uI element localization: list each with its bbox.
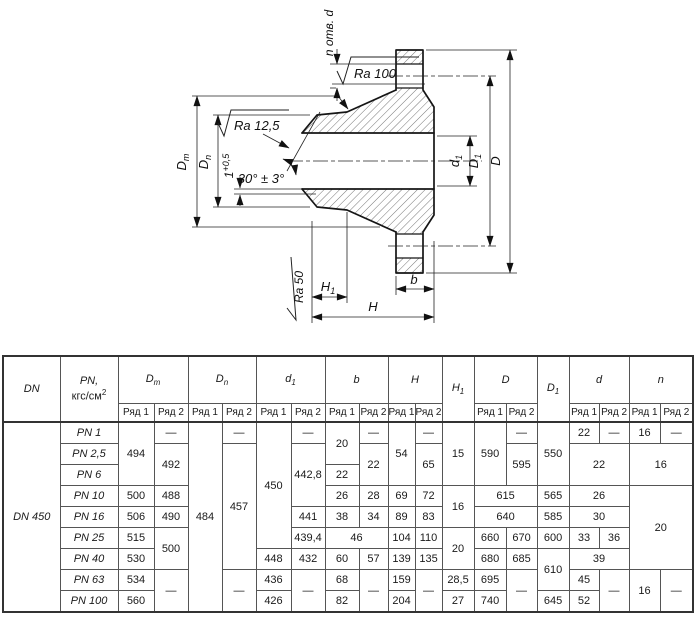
table-cell: 550 xyxy=(537,422,569,486)
table-cell: 69 xyxy=(388,486,415,507)
table-cell: 28,5 xyxy=(442,570,474,591)
table-cell: 204 xyxy=(388,591,415,613)
ra125-label: Ra 12,5 xyxy=(234,118,280,133)
col-header-h1: H1 xyxy=(442,356,474,422)
table-cell: 432 xyxy=(291,549,325,570)
table-cell: 26 xyxy=(569,486,629,507)
col-header-n: n xyxy=(629,356,693,404)
dimension-lines xyxy=(192,49,517,323)
table-cell: 89 xyxy=(388,507,415,528)
table-cell: 110 xyxy=(415,528,442,549)
subheader-row1: Ряд 1 xyxy=(474,404,506,423)
dim-dm-label: Dm xyxy=(174,153,191,170)
flange-drawing: n отв. d Ra 100 Ra 12,5 Ra 50 30° ± 3° D… xyxy=(0,0,700,353)
table-row: PN 1050048826286972166155652620 xyxy=(3,486,693,507)
table-cell: — xyxy=(154,422,188,444)
table-cell: — xyxy=(415,422,442,444)
table-cell: — xyxy=(415,570,442,613)
table-cell: 20 xyxy=(442,528,474,570)
table-cell: — xyxy=(222,570,256,613)
col-header-D: D xyxy=(474,356,537,404)
table-cell: 20 xyxy=(325,422,359,465)
subheader-row2: Ряд 2 xyxy=(154,404,188,423)
subheader-row2: Ряд 2 xyxy=(599,404,629,423)
table-cell: 590 xyxy=(474,422,506,486)
subheader-row1: Ряд 1 xyxy=(325,404,359,423)
table-cell: 492 xyxy=(154,444,188,486)
table-cell: 104 xyxy=(388,528,415,549)
table-cell: 159 xyxy=(388,570,415,591)
table-cell: — xyxy=(291,422,325,444)
ra100-label: Ra 100 xyxy=(354,66,397,81)
dim-D-label: D xyxy=(488,156,503,165)
table-cell: 680 xyxy=(474,549,506,570)
table-cell: 640 xyxy=(474,507,537,528)
table-cell: — xyxy=(359,570,388,613)
col-header-D1: D1 xyxy=(537,356,569,422)
table-row: PN 100560426822042774064552 xyxy=(3,591,693,613)
table-cell: 600 xyxy=(537,528,569,549)
flange-section-hatching xyxy=(302,50,434,273)
table-cell: — xyxy=(359,422,388,444)
table-cell: 484 xyxy=(188,422,222,612)
table-cell: 426 xyxy=(256,591,291,613)
table-cell: — xyxy=(291,570,325,613)
table-cell: 494 xyxy=(118,422,154,486)
table-row: PN 25515500439,446104110206606706003336 xyxy=(3,528,693,549)
table-cell: PN 16 xyxy=(60,507,118,528)
table-cell: 16 xyxy=(629,570,660,613)
dim-D1-label: D1 xyxy=(466,154,483,168)
table-cell: PN 6 xyxy=(60,465,118,486)
col-header-pn: PN, кгс/см2 xyxy=(60,356,118,422)
col-header-d1: d1 xyxy=(256,356,325,404)
table-cell: 34 xyxy=(359,507,388,528)
table-cell: 30 xyxy=(569,507,629,528)
table-cell: 615 xyxy=(474,486,537,507)
table-cell: 490 xyxy=(154,507,188,528)
table-cell: 695 xyxy=(474,570,506,591)
table-cell: — xyxy=(599,422,629,444)
dim-d1-label: d1 xyxy=(447,155,464,167)
table-cell: 22 xyxy=(359,444,388,486)
table-cell: 442,8 xyxy=(291,444,325,507)
table-cell: 60 xyxy=(325,549,359,570)
table-cell: PN 25 xyxy=(60,528,118,549)
subheader-row1: Ряд 1 xyxy=(629,404,660,423)
dim-h-label: H xyxy=(368,299,378,314)
subheader-row2: Ряд 2 xyxy=(222,404,256,423)
flange-outline xyxy=(302,50,434,273)
col-header-dn: DN xyxy=(3,356,60,422)
table-cell: 660 xyxy=(474,528,506,549)
dim-root-label: 1+0,5 xyxy=(221,153,236,178)
table-cell: 28 xyxy=(359,486,388,507)
table-cell: 83 xyxy=(415,507,442,528)
table-cell: 530 xyxy=(118,549,154,570)
table-cell: 15 xyxy=(442,422,474,486)
table-cell: 26 xyxy=(325,486,359,507)
table-cell: 610 xyxy=(537,549,569,591)
table-cell: 38 xyxy=(325,507,359,528)
table-cell: 450 xyxy=(256,422,291,549)
col-header-d: d xyxy=(569,356,629,404)
table-cell: 448 xyxy=(256,549,291,570)
table-cell: — xyxy=(599,570,629,613)
table-cell: — xyxy=(506,422,537,444)
table-row: PN 63534——436—68—159—28,5695—45—16— xyxy=(3,570,693,591)
angle-label: 30° ± 3° xyxy=(238,171,284,186)
table-cell: — xyxy=(222,422,256,444)
table-cell: 585 xyxy=(537,507,569,528)
subheader-row1: Ряд 1 xyxy=(256,404,291,423)
col-header-dm: Dm xyxy=(118,356,188,404)
col-header-b: b xyxy=(325,356,388,404)
table-cell: 645 xyxy=(537,591,569,613)
table-cell: 72 xyxy=(415,486,442,507)
table-cell: 39 xyxy=(569,549,629,570)
subheader-row2: Ряд 2 xyxy=(506,404,537,423)
table-cell: 685 xyxy=(506,549,537,570)
table-cell: 68 xyxy=(325,570,359,591)
table-cell: 506 xyxy=(118,507,154,528)
table-cell: 65 xyxy=(415,444,442,486)
table-cell: 16 xyxy=(629,422,660,444)
table-cell: 16 xyxy=(442,486,474,528)
flange-dimension-table: DN PN, кгс/см2 Dm Dn d1 b H H1 D D1 d n xyxy=(2,355,694,613)
dim-dn-label: Dn xyxy=(196,155,213,169)
subheader-row2: Ряд 2 xyxy=(660,404,693,423)
flange-table-body: DN 450PN 1494—484—450—20—54—15590—55022—… xyxy=(3,422,693,612)
table-row: DN 450PN 1494—484—450—20—54—15590—55022—… xyxy=(3,422,693,444)
table-cell: 139 xyxy=(388,549,415,570)
table-cell: 22 xyxy=(569,444,629,486)
table-cell: 82 xyxy=(325,591,359,613)
table-cell: 27 xyxy=(442,591,474,613)
table-cell: 36 xyxy=(599,528,629,549)
table-cell: 57 xyxy=(359,549,388,570)
dim-h1-label: H1 xyxy=(321,279,335,296)
table-cell: 45 xyxy=(569,570,599,591)
table-cell: 20 xyxy=(629,486,693,570)
table-cell: PN 1 xyxy=(60,422,118,444)
table-cell: 500 xyxy=(154,528,188,570)
table-cell: 33 xyxy=(569,528,599,549)
table-cell: 22 xyxy=(325,465,359,486)
table-cell: — xyxy=(660,422,693,444)
table-cell: 670 xyxy=(506,528,537,549)
table-cell: 54 xyxy=(388,422,415,486)
table-cell: 740 xyxy=(474,591,506,613)
subheader-row1: Ряд 1 xyxy=(388,404,415,423)
table-cell: 46 xyxy=(325,528,388,549)
col-header-dn2: Dn xyxy=(188,356,256,404)
table-cell: 16 xyxy=(629,444,693,486)
col-header-h: H xyxy=(388,356,442,404)
table-cell: DN 450 xyxy=(3,422,60,612)
table-cell: PN 63 xyxy=(60,570,118,591)
table-cell: 22 xyxy=(569,422,599,444)
table-row: PN 165064904413834898364058530 xyxy=(3,507,693,528)
subheader-row1: Ряд 1 xyxy=(188,404,222,423)
table-cell: 135 xyxy=(415,549,442,570)
table-cell: PN 2,5 xyxy=(60,444,118,465)
table-cell: PN 100 xyxy=(60,591,118,613)
n-holes-label: n отв. d xyxy=(322,10,336,57)
table-cell: — xyxy=(506,570,537,613)
flange-spec-page: n отв. d Ra 100 Ra 12,5 Ra 50 30° ± 3° D… xyxy=(0,0,700,618)
subheader-row2: Ряд 2 xyxy=(415,404,442,423)
dim-b-label: b xyxy=(410,272,417,287)
table-cell: 565 xyxy=(537,486,569,507)
table-cell: 457 xyxy=(222,444,256,570)
table-row: PN 40530448432605713913568068561039 xyxy=(3,549,693,570)
ra50-label: Ra 50 xyxy=(292,271,306,303)
table-cell: 439,4 xyxy=(291,528,325,549)
table-cell: — xyxy=(154,570,188,613)
dimension-table-wrapper: DN PN, кгс/см2 Dm Dn d1 b H H1 D D1 d n xyxy=(2,355,696,613)
table-cell: 560 xyxy=(118,591,154,613)
subheader-row2: Ряд 2 xyxy=(359,404,388,423)
table-cell: 436 xyxy=(256,570,291,591)
table-cell: 595 xyxy=(506,444,537,486)
table-cell: PN 10 xyxy=(60,486,118,507)
table-cell: 534 xyxy=(118,570,154,591)
subheader-row2: Ряд 2 xyxy=(291,404,325,423)
table-cell: 441 xyxy=(291,507,325,528)
table-cell: PN 40 xyxy=(60,549,118,570)
table-cell: 500 xyxy=(118,486,154,507)
table-cell: 515 xyxy=(118,528,154,549)
table-cell: — xyxy=(660,570,693,613)
table-cell: 52 xyxy=(569,591,599,613)
subheader-row1: Ряд 1 xyxy=(118,404,154,423)
subheader-row1: Ряд 1 xyxy=(569,404,599,423)
table-cell: 488 xyxy=(154,486,188,507)
